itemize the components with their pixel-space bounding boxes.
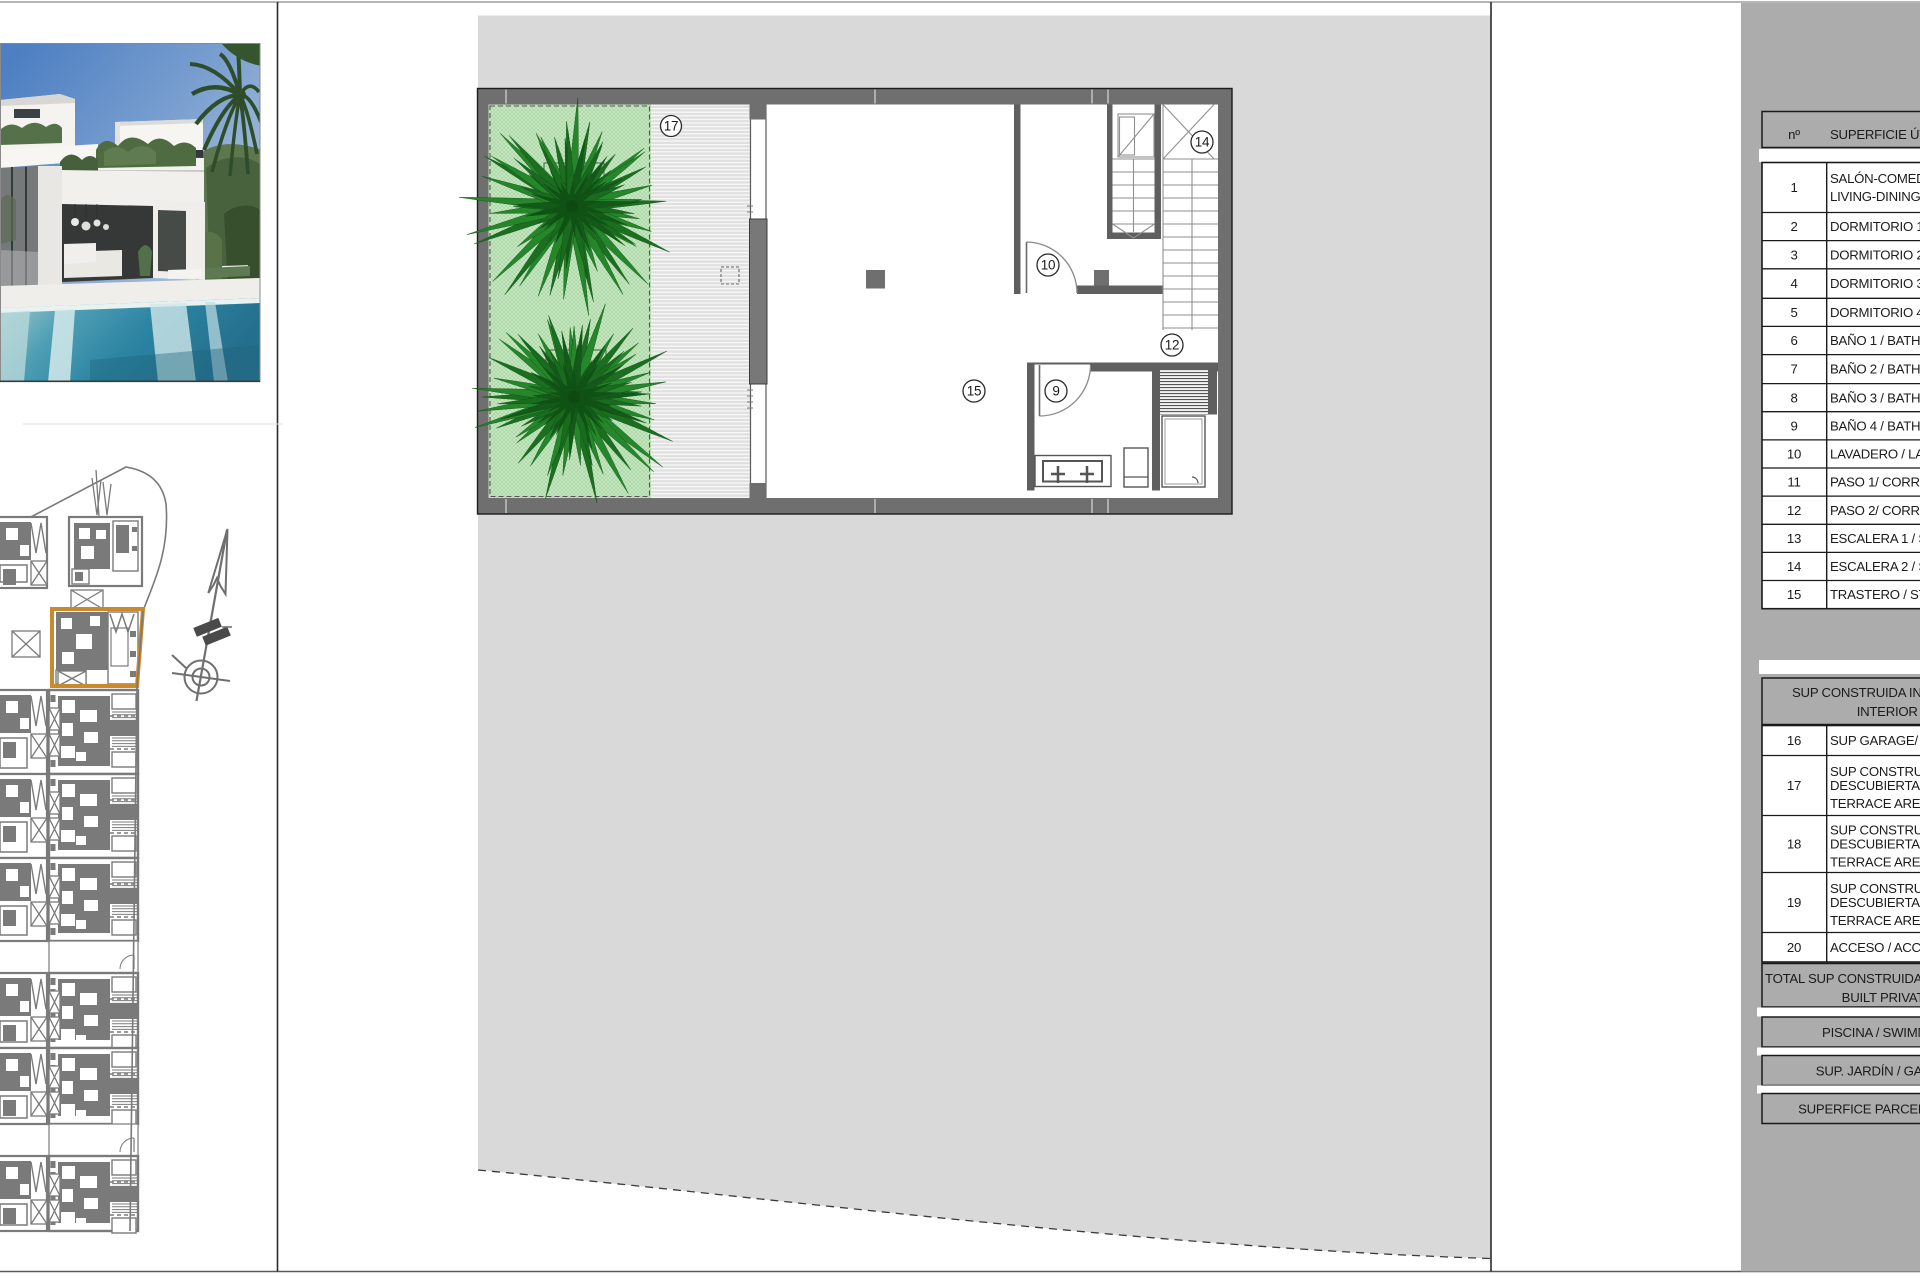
svg-text:TERRACE AREA 3: TERRACE AREA 3 — [1830, 913, 1920, 928]
svg-text:15: 15 — [1787, 587, 1801, 602]
svg-text:TERRACE AREA 1: TERRACE AREA 1 — [1830, 796, 1920, 811]
svg-text:18: 18 — [1787, 836, 1801, 851]
svg-text:SUP CONSTRUIDA INTERIOR / TOTA: SUP CONSTRUIDA INTERIOR / TOTAL — [1792, 685, 1920, 700]
svg-text:BAÑO 1 / BATHROOM 1: BAÑO 1 / BATHROOM 1 — [1830, 333, 1920, 348]
svg-text:14: 14 — [1195, 135, 1210, 150]
svg-text:10: 10 — [1041, 258, 1056, 273]
svg-text:PISCINA / SWIMMING POOL: PISCINA / SWIMMING POOL — [1822, 1025, 1920, 1040]
svg-text:8: 8 — [1790, 390, 1797, 405]
svg-text:5: 5 — [1790, 305, 1797, 320]
svg-text:SUP CONSTRUIDA TERRAZA: SUP CONSTRUIDA TERRAZA — [1830, 822, 1920, 837]
svg-text:3: 3 — [1790, 247, 1797, 262]
svg-text:DORMITORIO 1 / BEDROOM 1: DORMITORIO 1 / BEDROOM 1 — [1830, 219, 1920, 234]
svg-text:SUPERFICIE ÚTIL / USABLE FLOOR: SUPERFICIE ÚTIL / USABLE FLOOR — [1830, 127, 1920, 142]
svg-text:PASO 1/ CORRIDOR 1: PASO 1/ CORRIDOR 1 — [1830, 475, 1920, 490]
svg-text:BAÑO 4 / BATHROOM 4: BAÑO 4 / BATHROOM 4 — [1830, 418, 1920, 433]
svg-text:11: 11 — [1787, 475, 1800, 490]
svg-text:17: 17 — [1787, 778, 1801, 793]
svg-text:LAVADERO / LAUNDRY: LAVADERO / LAUNDRY — [1830, 447, 1920, 462]
svg-text:20: 20 — [1787, 940, 1801, 955]
svg-text:TOTAL SUP CONSTRUIDA PRIVATIVA: TOTAL SUP CONSTRUIDA PRIVATIVA / TOTAL — [1765, 971, 1920, 986]
svg-text:12: 12 — [1165, 338, 1180, 353]
svg-text:INTERIOR AREA: INTERIOR AREA — [1857, 704, 1920, 719]
svg-text:nº: nº — [1788, 127, 1800, 142]
svg-text:9: 9 — [1052, 384, 1059, 399]
svg-text:19: 19 — [1787, 895, 1801, 910]
svg-text:12: 12 — [1787, 503, 1801, 518]
svg-text:15: 15 — [967, 384, 982, 399]
svg-text:PASO 2/ CORRIDOR 2: PASO 2/ CORRIDOR 2 — [1830, 503, 1920, 518]
svg-text:10: 10 — [1787, 447, 1801, 462]
svg-text:9: 9 — [1790, 418, 1797, 433]
svg-text:14: 14 — [1787, 559, 1801, 574]
svg-text:SUPERFICE PARCELA / PLOT AREA: SUPERFICE PARCELA / PLOT AREA — [1798, 1102, 1920, 1117]
svg-text:1: 1 — [1790, 180, 1797, 195]
svg-text:DORMITORIO 4 / BEDROOM 4: DORMITORIO 4 / BEDROOM 4 — [1830, 305, 1920, 320]
svg-text:13: 13 — [1787, 531, 1801, 546]
svg-text:16: 16 — [1787, 733, 1801, 748]
svg-text:DESCUBIERTA 1 / UNCOVERED: DESCUBIERTA 1 / UNCOVERED — [1830, 778, 1920, 793]
svg-text:2: 2 — [1790, 219, 1797, 234]
svg-text:LIVING-DINING-KITCHEN: LIVING-DINING-KITCHEN — [1830, 189, 1920, 204]
svg-text:BUILT PRIVATE AREA: BUILT PRIVATE AREA — [1842, 990, 1920, 1005]
svg-text:TRASTERO / STORAGE: TRASTERO / STORAGE — [1830, 587, 1920, 602]
svg-text:SUP. JARDÍN / GARDEN AREA: SUP. JARDÍN / GARDEN AREA — [1816, 1064, 1920, 1079]
svg-text:BAÑO 3 / BATHROOM 3: BAÑO 3 / BATHROOM 3 — [1830, 390, 1920, 405]
svg-text:17: 17 — [664, 119, 679, 134]
svg-text:ACCESO / ACCESS: ACCESO / ACCESS — [1830, 940, 1920, 955]
svg-text:6: 6 — [1790, 333, 1797, 348]
svg-text:DORMITORIO 3 / BEDROOM 3: DORMITORIO 3 / BEDROOM 3 — [1830, 276, 1920, 291]
svg-text:TERRACE AREA 2: TERRACE AREA 2 — [1830, 854, 1920, 869]
svg-text:DESCUBIERTA 3 / UNCOVERED: DESCUBIERTA 3 / UNCOVERED — [1830, 895, 1920, 910]
svg-text:DORMITORIO 2 / BEDROOM 2: DORMITORIO 2 / BEDROOM 2 — [1830, 247, 1920, 262]
svg-text:SUP CONSTRUIDA TERRAZA: SUP CONSTRUIDA TERRAZA — [1830, 764, 1920, 779]
svg-text:ESCALERA 2 / STAIRS 2: ESCALERA 2 / STAIRS 2 — [1830, 559, 1920, 574]
svg-text:BAÑO 2 / BATHROOM 2: BAÑO 2 / BATHROOM 2 — [1830, 362, 1920, 377]
svg-text:SUP CONSTRUIDA TERRAZA: SUP CONSTRUIDA TERRAZA — [1830, 881, 1920, 896]
svg-text:7: 7 — [1790, 362, 1797, 377]
svg-text:4: 4 — [1790, 276, 1797, 291]
svg-text:SALÓN-COMEDOR-COCINA /: SALÓN-COMEDOR-COCINA / — [1830, 171, 1920, 186]
svg-text:SUP GARAGE/ GARAGE AREA: SUP GARAGE/ GARAGE AREA — [1830, 733, 1920, 748]
svg-text:ESCALERA 1 / STAIRS 1: ESCALERA 1 / STAIRS 1 — [1830, 531, 1920, 546]
svg-text:DESCUBIERTA 2 / UNCOVERED: DESCUBIERTA 2 / UNCOVERED — [1830, 836, 1920, 851]
